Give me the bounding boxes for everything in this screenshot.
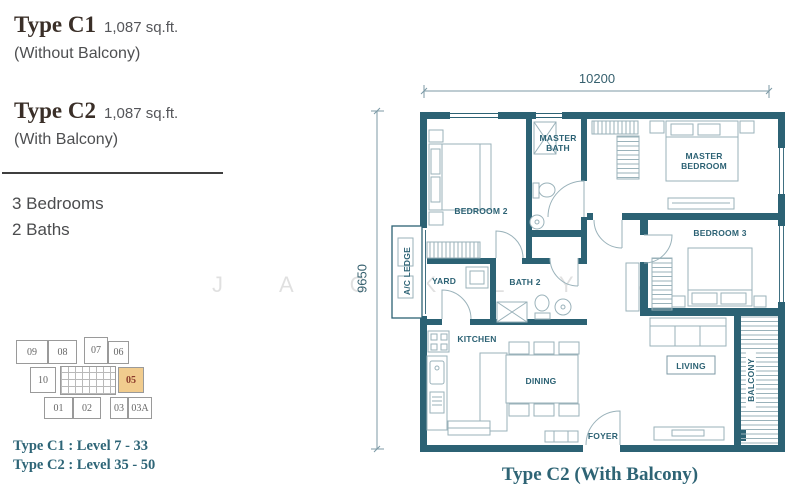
floor-plan-caption: Type C2 (With Balcony) bbox=[470, 464, 730, 486]
dining-furniture bbox=[480, 342, 579, 442]
yard-washer bbox=[466, 267, 488, 288]
room-label-living: LIVING bbox=[661, 361, 721, 371]
room-label-master-bedroom: MASTER BEDROOM bbox=[672, 151, 736, 171]
room-label-kitchen: KITCHEN bbox=[447, 334, 507, 344]
room-label-foyer: FOYER bbox=[578, 431, 628, 441]
floor-plan-drawing bbox=[0, 0, 800, 498]
room-label-balcony: BALCONY bbox=[746, 350, 756, 410]
room-label-master-bath: MASTER BATH bbox=[532, 133, 584, 153]
bed-icon-bedroom2 bbox=[427, 130, 491, 258]
room-label-yard: YARD bbox=[424, 276, 464, 286]
room-label-bath2: BATH 2 bbox=[495, 277, 555, 287]
dimension-height-label: 9650 bbox=[355, 249, 370, 309]
room-label-dining: DINING bbox=[511, 376, 571, 386]
room-label-ac-ledge: A/C LEDGE bbox=[402, 241, 412, 301]
room-label-bedroom2: BEDROOM 2 bbox=[440, 206, 522, 216]
room-label-bedroom3: BEDROOM 3 bbox=[680, 228, 760, 238]
dimension-width-label: 10200 bbox=[567, 71, 627, 86]
bath2-fixtures bbox=[497, 295, 571, 322]
living-furniture bbox=[650, 318, 726, 440]
